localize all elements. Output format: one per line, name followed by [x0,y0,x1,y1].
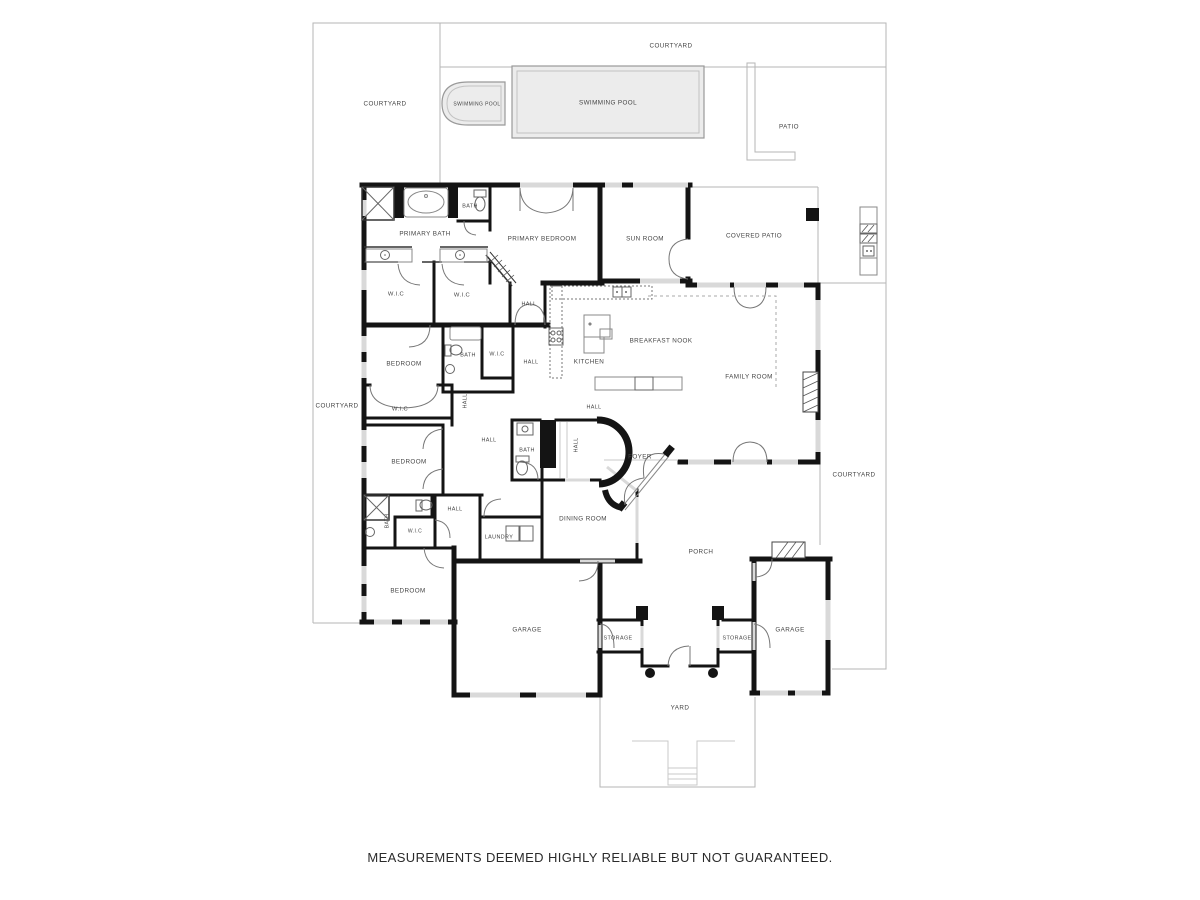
room-label-bedroom-2: BEDROOM [391,459,426,466]
fixtures [362,187,818,558]
room-label-wic-1: W.I.C [388,292,404,298]
room-label-bedroom-3: BEDROOM [390,588,425,595]
room-label-hall-bottom: HALL [447,506,462,512]
room-label-hall-south: HALL [523,359,538,365]
yard-walkway [632,741,735,785]
room-label-sun-room: SUN ROOM [626,236,664,243]
room-label-hall-kitchen: HALL [586,404,601,410]
bathtub-icon [404,188,448,217]
room-label-storage-right: STORAGE [722,635,751,641]
outdoor-kitchen [860,207,877,275]
room-label-foyer: FOYER [628,454,652,461]
room-label-storage-left: STORAGE [603,635,632,641]
room-label-swimming-pool-spa: SWIMMING POOL [453,101,500,107]
room-label-primary-bedroom: PRIMARY BEDROOM [508,236,577,243]
vanity-sinks [366,249,487,262]
room-label-kitchen: KITCHEN [574,359,604,366]
room-label-yard: YARD [671,705,690,712]
room-label-patio: PATIO [779,124,799,131]
room-label-courtyard-top: COURTYARD [650,43,693,50]
floor-plan-page: COURTYARDCOURTYARDSWIMMING POOLSWIMMING … [0,0,1200,900]
doors [370,188,772,666]
room-label-porch: PORCH [689,549,714,556]
room-label-courtyard-upper-left: COURTYARD [364,101,407,108]
room-label-bedroom-1: BEDROOM [386,361,421,368]
interior-walls [364,185,819,678]
room-label-breakfast-nook: BREAKFAST NOOK [630,338,693,345]
room-label-primary-bath: PRIMARY BATH [399,231,450,238]
room-label-bath-3: BATH [384,514,390,529]
stove-icon [549,328,563,345]
room-label-hall-north: HALL [521,301,536,307]
room-label-wic-4: W.I.C [392,407,408,413]
room-label-courtyard-right: COURTYARD [833,472,876,479]
room-label-garage-right: GARAGE [775,627,804,634]
room-label-courtyard-left: COURTYARD [316,403,359,410]
room-label-wic-2: W.I.C [454,293,470,299]
room-label-family-room: FAMILY ROOM [725,374,773,381]
room-label-bath-2: BATH [519,447,535,453]
room-label-wic-3: W.I.C [489,351,504,357]
bath1-fixtures [445,327,481,374]
kitchen-island [584,315,612,353]
room-label-hall-east: HALL [573,437,579,452]
disclaimer-text: MEASUREMENTS DEEMED HIGHLY RELIABLE BUT … [0,850,1200,865]
room-label-swimming-pool: SWIMMING POOL [579,100,637,107]
room-label-wic-5: W.I.C [408,528,422,534]
room-label-dining-room: DINING ROOM [559,516,607,523]
room-label-laundry: LAUNDRY [485,534,513,540]
grill-icon [772,542,805,558]
floor-plan-canvas: COURTYARDCOURTYARDSWIMMING POOLSWIMMING … [0,0,1200,900]
room-label-hall-center: HALL [481,437,496,443]
room-label-hall-vertical: HALL [462,393,468,408]
room-label-bath-top: BATH [462,203,478,209]
fireplace-icon [803,372,818,412]
room-label-garage-left: GARAGE [512,627,541,634]
shower-icon [362,187,394,220]
patio-wall [747,63,795,160]
room-label-covered-patio: COVERED PATIO [726,233,782,240]
room-label-bath-1: BATH [460,352,476,358]
linen-closet [560,422,567,478]
